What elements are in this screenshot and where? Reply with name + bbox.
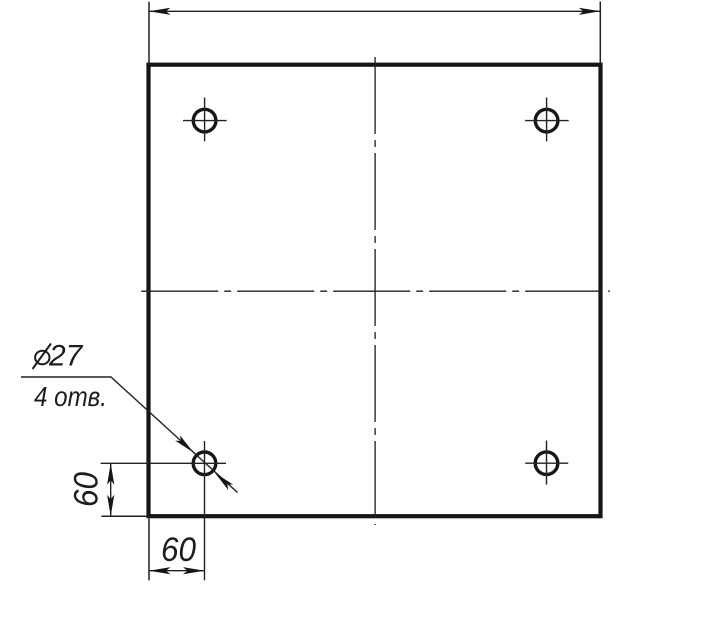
svg-text:60: 60 bbox=[68, 472, 106, 507]
svg-text:4 отв.: 4 отв. bbox=[34, 381, 107, 412]
svg-text:60: 60 bbox=[161, 531, 196, 569]
svg-text:27: 27 bbox=[48, 340, 84, 373]
